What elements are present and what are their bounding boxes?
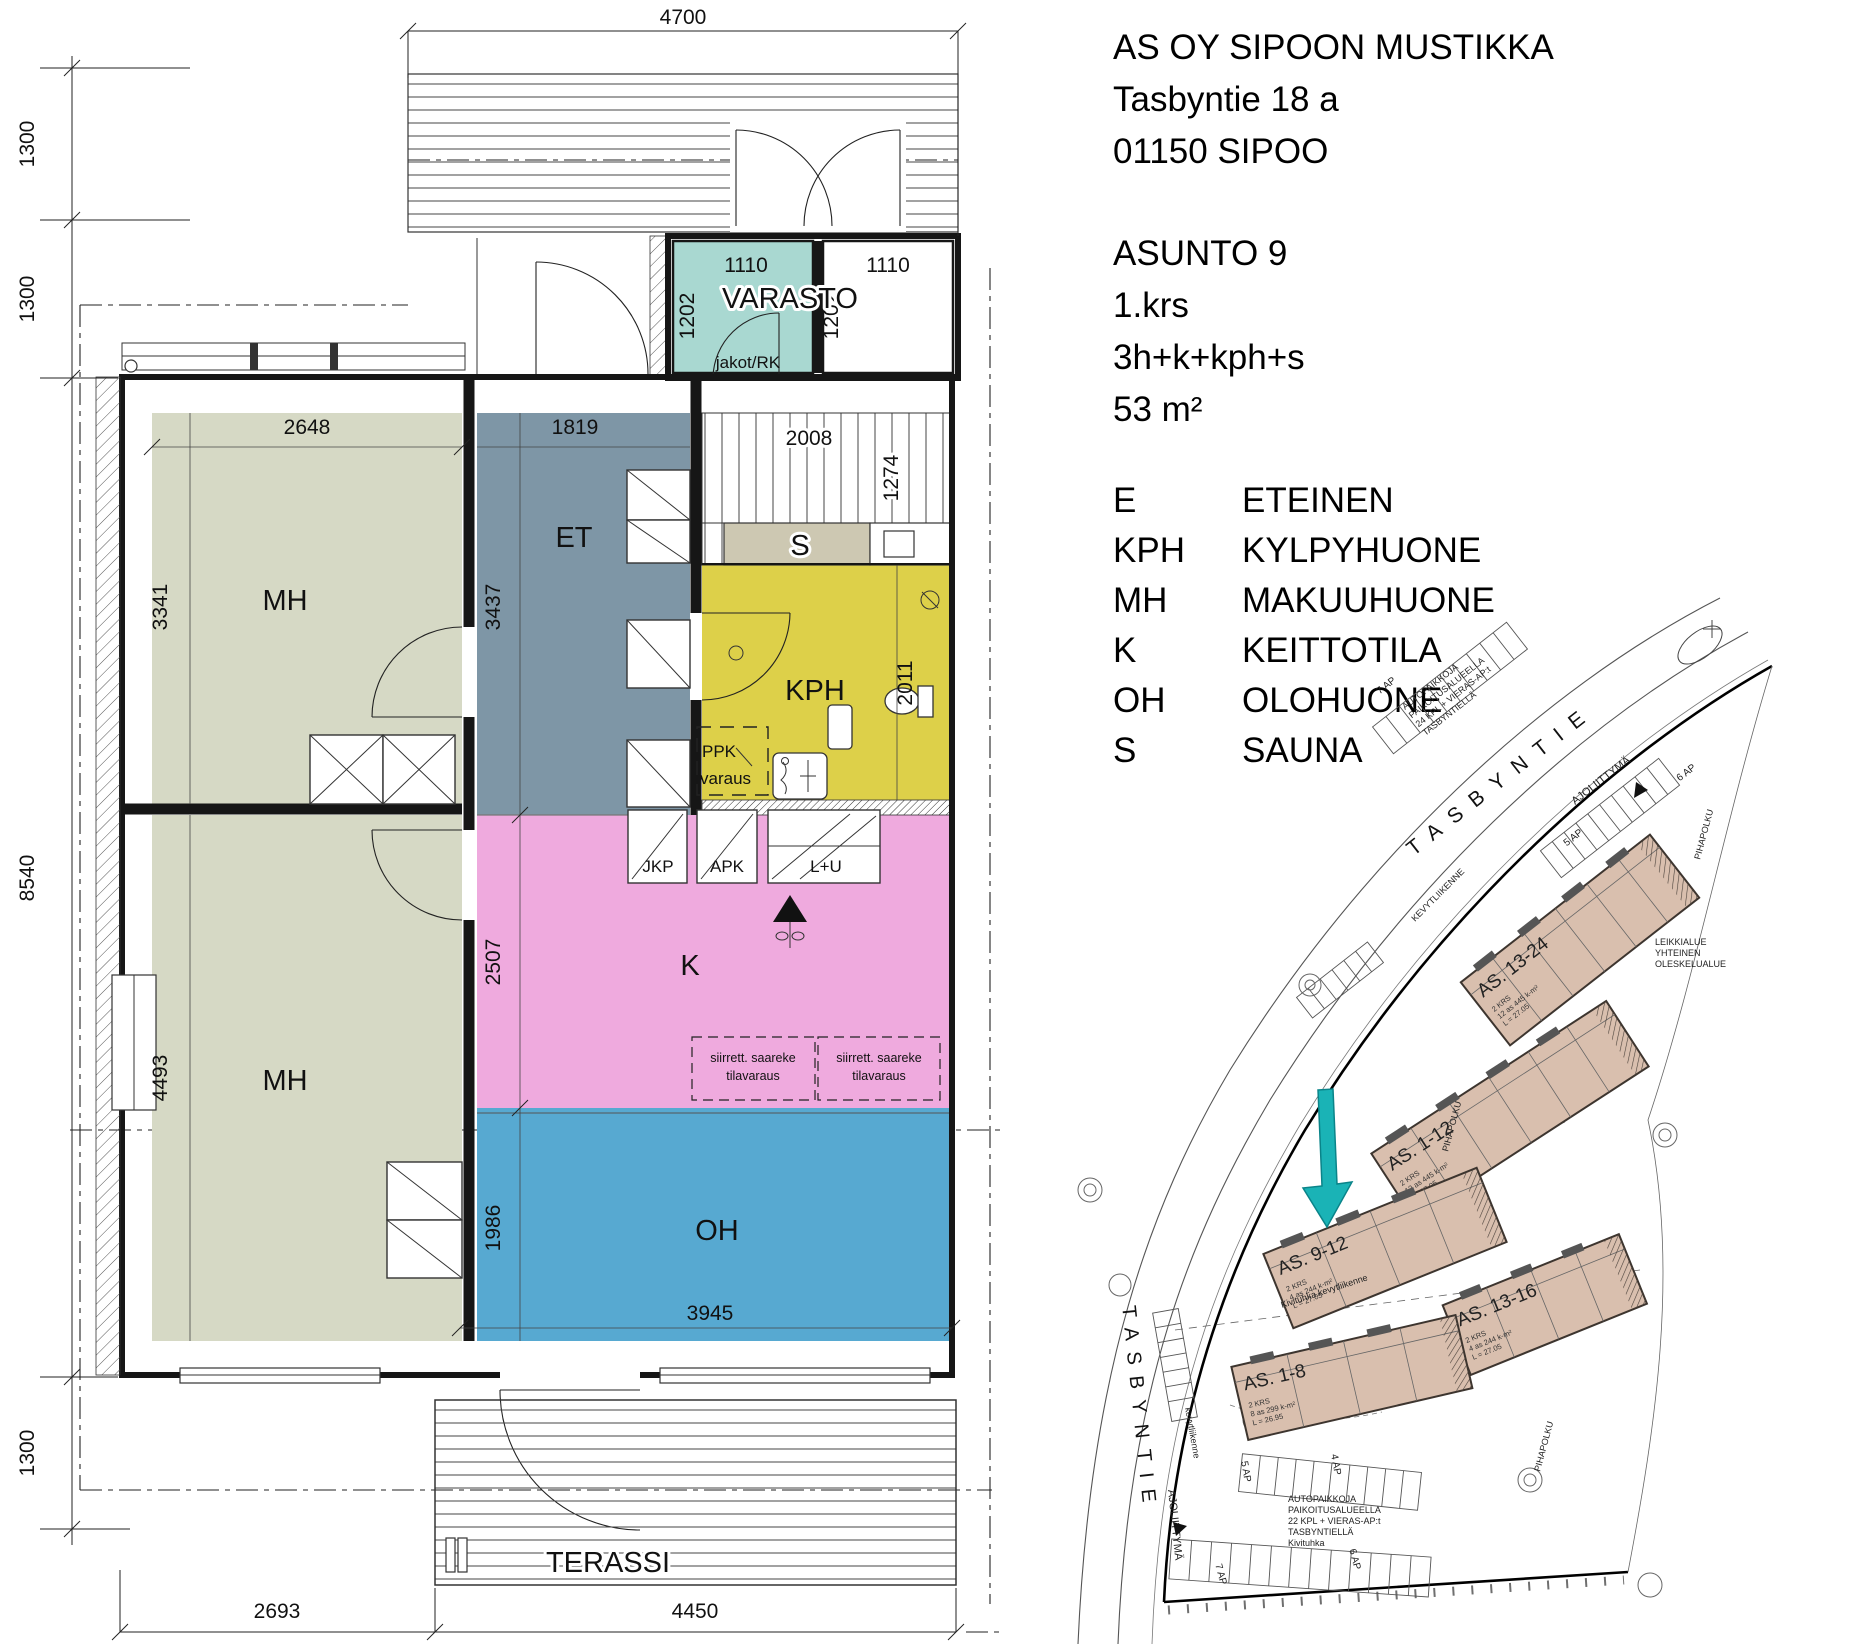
dim-left-4: 1300 [16,1430,39,1477]
street-name-left: TASBYNTIE [1117,1304,1161,1514]
note-parking-top: AUTOPAIKKOJA PAIKOITUSALUEELLA 24 KPL + … [1400,646,1500,737]
dim-mh-top-h: 3341 [149,584,172,631]
dim-varasto-width: 1110 [724,254,768,277]
legend-name: ETEINEN [1242,476,1394,526]
room-label-mh-top: MH [262,585,307,617]
label-apk: APK [710,857,745,876]
parking-count: 4 AP [1328,1453,1343,1476]
dim-storage2-width: 1110 [866,254,910,277]
apartment-area: 53 m² [1113,384,1554,436]
building-as-1-8: AS. 1-8 2 KRS 8 as 299 k-m² L = 26.95 [1230,1309,1472,1440]
label-island-2b: tilavaraus [852,1069,906,1083]
dim-et-w: 1819 [552,416,599,439]
label-pihapolku: PIHAPOLKU [1532,1420,1555,1472]
parking-count: 6 AP [1675,762,1699,784]
sauna-zone: S 2008 1274 [702,413,952,565]
site-plan: AS. 13-24 2 KRS 12 as 445 k-m² L = 27.05… [1000,560,1858,1644]
parking-count: 5 AP [1238,1460,1253,1483]
label-lu: L+U [810,857,842,876]
roof-canopy [408,74,958,232]
label-ajoliittyma-top: AJOLIITTYMÄ [1569,754,1633,808]
note-parking-bottom: AUTOPAIKKOJA PAIKOITUSALUEELLA 22 KPL + … [1288,1494,1381,1548]
room-label-terrace: TERASSI [546,1547,670,1579]
dim-living-h: 1986 [482,1205,505,1252]
room-label-sauna: S [790,530,809,562]
drawing-sheet: 1110 1202 1110 1202 VARASTO jakot/RK S 2… [0,0,1858,1644]
dim-top: 4700 [660,6,707,29]
note-line: TASBYNTIELLÄ [1288,1527,1353,1537]
apartment-layout: 3h+k+kph+s [1113,332,1554,384]
storage-block: 1110 1202 1110 1202 VARASTO jakot/RK [650,236,958,378]
dim-bottom-2: 4450 [672,1600,719,1623]
room-label-kph: KPH [785,675,845,707]
parking-count: 7 AP [1212,1563,1228,1587]
apartment-number: ASUNTO 9 [1113,228,1554,280]
note-line: OLESKELUALUE [1655,959,1726,969]
dim-bottom-1: 2693 [254,1600,301,1623]
site-labels: TASBYNTIE TASBYNTIE AJOLIITTYMÄ AJOLIITT… [1117,619,1728,1587]
entrance-door [477,238,648,375]
dim-kph-h: 2011 [894,660,917,705]
label-jkp: JKP [642,857,673,876]
note-line: YHTEINEN [1655,948,1701,958]
apartment-floor: 1.krs [1113,280,1554,332]
room-label-et: ET [555,522,592,554]
label-pihapolku: PIHAPOLKU [1692,808,1715,860]
legend-abbr: E [1113,476,1242,526]
note-leikkialue: LEIKKIALUE YHTEINEN OLESKELUALUE [1655,937,1726,969]
label-island-2a: siirrett. saareke [836,1051,921,1065]
label-jakot-rk: jakot/RK [715,353,781,372]
project-name: AS OY SIPOON MUSTIKKA [1113,22,1554,74]
dim-left-3: 8540 [16,855,39,902]
top-window-band [122,343,465,370]
exterior-wall-hatch [96,377,120,1375]
note-line: AUTOPAIKKOJA [1288,1494,1356,1504]
dim-mh-bottom-h: 4493 [149,1055,172,1102]
terrace: TERASSI [435,1400,956,1585]
tree-symbol-icon [1672,619,1729,672]
room-label-living: OH [695,1215,739,1247]
room-label-varasto: VARASTO [722,283,858,315]
dim-varasto-height: 1202 [676,293,699,340]
dim-left-1: 1300 [16,121,39,168]
note-line: 22 KPL + VIERAS-AP:t [1288,1516,1381,1526]
dim-sauna-depth: 1274 [880,454,903,501]
buildings: AS. 13-24 2 KRS 12 as 445 k-m² L = 27.05… [1230,830,1699,1440]
project-address: Tasbyntie 18 a [1113,74,1554,126]
parking-count: 6 AP [1346,1548,1362,1572]
label-island-1b: tilavaraus [726,1069,780,1083]
label-varaus: varaus [700,769,751,788]
note-line: LEIKKIALUE [1655,937,1707,947]
note-line: Kivituhka [1288,1538,1325,1548]
dim-sauna-width: 2008 [786,427,833,450]
dim-living-w: 3945 [687,1302,734,1325]
dim-et-h: 3437 [482,584,505,631]
location-arrow-icon [1303,1089,1352,1227]
label-kevytliikenne: KEVYTLIIKENNE [1409,866,1466,923]
parking-rows [1153,622,1680,1597]
project-city: 01150 SIPOO [1113,126,1554,178]
dim-mh-top-w: 2648 [284,416,331,439]
room-label-mh-bottom: MH [262,1065,307,1097]
room-label-kitchen: K [680,950,700,982]
washbasin [828,705,852,749]
note-line: PAIKOITUSALUEELLA [1288,1505,1381,1515]
dim-kitchen-h: 2507 [482,939,505,986]
label-island-1a: siirrett. saareke [710,1051,795,1065]
dim-left-2: 1300 [16,276,39,323]
parking-count: 7 AP [1375,675,1399,697]
legend-row: EETEINEN [1113,476,1554,526]
label-ppk: PPK [702,742,737,761]
sauna-stove [884,531,914,557]
floor-plan: 1110 1202 1110 1202 VARASTO jakot/RK S 2… [0,0,1005,1644]
